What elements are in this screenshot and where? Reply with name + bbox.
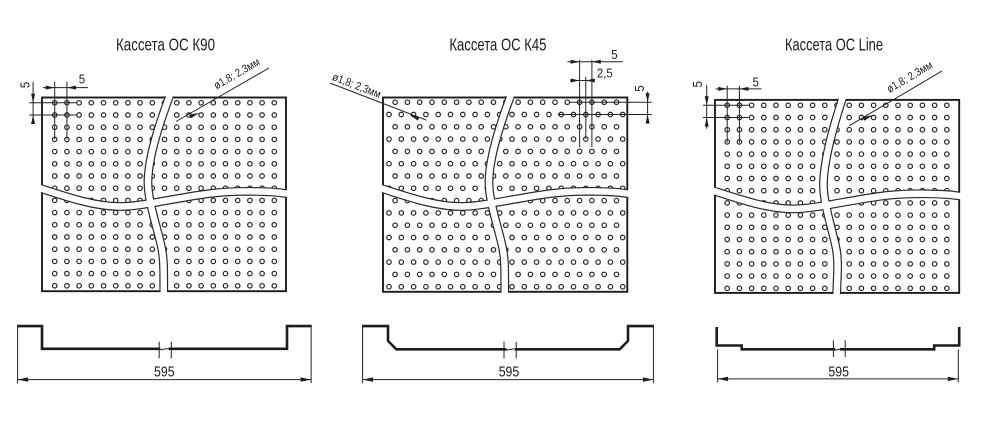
svg-text:5: 5 <box>611 47 617 62</box>
svg-text:595: 595 <box>499 365 520 381</box>
svg-text:595: 595 <box>154 365 175 381</box>
svg-text:Кассета ОС К45: Кассета ОС К45 <box>449 34 546 54</box>
svg-text:Кассета ОС К90: Кассета ОС К90 <box>116 34 215 54</box>
svg-text:2,5: 2,5 <box>597 65 613 80</box>
svg-text:5: 5 <box>690 81 705 87</box>
svg-text:595: 595 <box>828 365 849 381</box>
svg-text:5: 5 <box>79 71 85 86</box>
svg-text:5: 5 <box>18 82 33 88</box>
svg-text:Кассета ОС Line: Кассета ОС Line <box>785 34 883 54</box>
svg-text:5: 5 <box>753 75 759 90</box>
svg-text:5: 5 <box>632 85 647 91</box>
